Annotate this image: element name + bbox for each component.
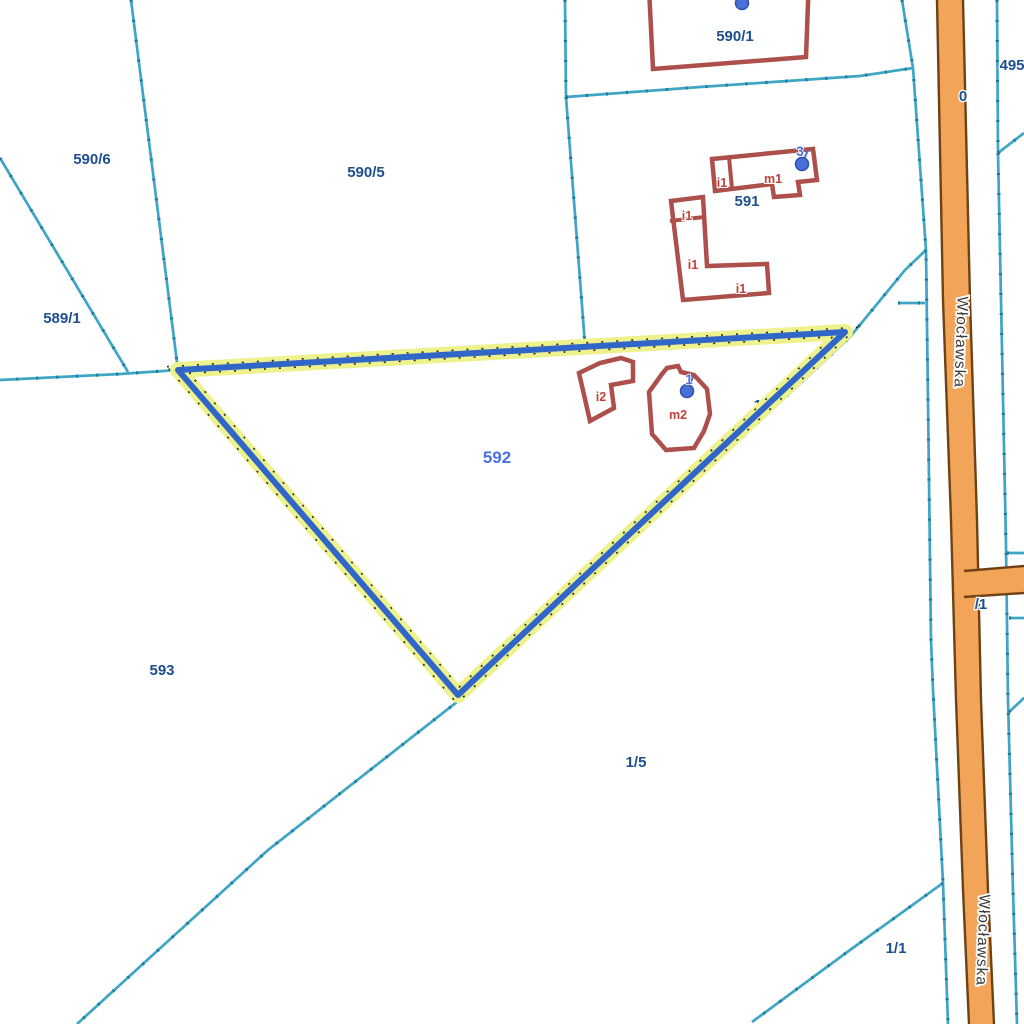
road-name-label: Włocławska: [972, 894, 992, 986]
parcel-label-591: 591: [734, 193, 759, 210]
building-label-i2: i2: [596, 390, 606, 404]
selected-parcel-outline[interactable]: [167, 327, 857, 703]
parcel-boundary-line: [1009, 698, 1024, 712]
parcel-label-1-1: 1/1: [886, 940, 907, 957]
selected-parcel-survey-dots-inner: [189, 337, 833, 687]
building-label-i1: i1: [736, 282, 746, 296]
building-label-i1: i1: [688, 258, 698, 272]
parcel-label-590-6: 590/6: [73, 151, 111, 168]
road-name-label: Włocławska: [950, 296, 970, 388]
address-label-3: 3: [796, 144, 804, 159]
parcel-label-593: 593: [149, 662, 174, 679]
address-point-marker[interactable]: [736, 0, 749, 10]
building-label-m1: m1: [764, 172, 782, 186]
building-label-i1: i1: [682, 209, 692, 223]
cadastral-map-viewport[interactable]: 1/3590/1590/6590/5589/15915931/51/14950/…: [0, 0, 1024, 1024]
building-label-m2: m2: [669, 408, 687, 422]
parcel-label-590-5: 590/5: [347, 164, 385, 181]
address-marker-dot-icon: [796, 158, 809, 171]
parcel-boundary-line: [131, 0, 178, 370]
parcel-boundary-line: [998, 133, 1024, 153]
cadastral-map[interactable]: 1/3590/1590/6590/5589/15915931/51/14950/…: [0, 0, 1024, 1024]
parcel-label-590-1: 590/1: [716, 28, 754, 45]
parcel-label-0: 0: [959, 88, 967, 105]
parcel-label-589-1: 589/1: [43, 310, 81, 327]
building-label-i1: i1: [717, 176, 727, 190]
parcel-label-495: 495: [999, 57, 1024, 74]
selected-parcel-halo: [178, 332, 845, 695]
parcel-label--1: /1: [975, 596, 988, 613]
parcel-label-1-5: 1/5: [626, 754, 647, 771]
address-marker-dot-icon: [736, 0, 749, 10]
parcel-boundary-line: [0, 158, 128, 372]
address-label-1: 1: [685, 372, 693, 387]
parcel-boundary-line: [0, 370, 178, 380]
parcel-boundary-line: [997, 0, 998, 153]
parcel-boundary-line: [566, 68, 913, 97]
selected-label-592: 592: [483, 448, 511, 467]
parcel-boundary-line: [566, 97, 585, 345]
parcel-boundary-line: [565, 0, 566, 97]
